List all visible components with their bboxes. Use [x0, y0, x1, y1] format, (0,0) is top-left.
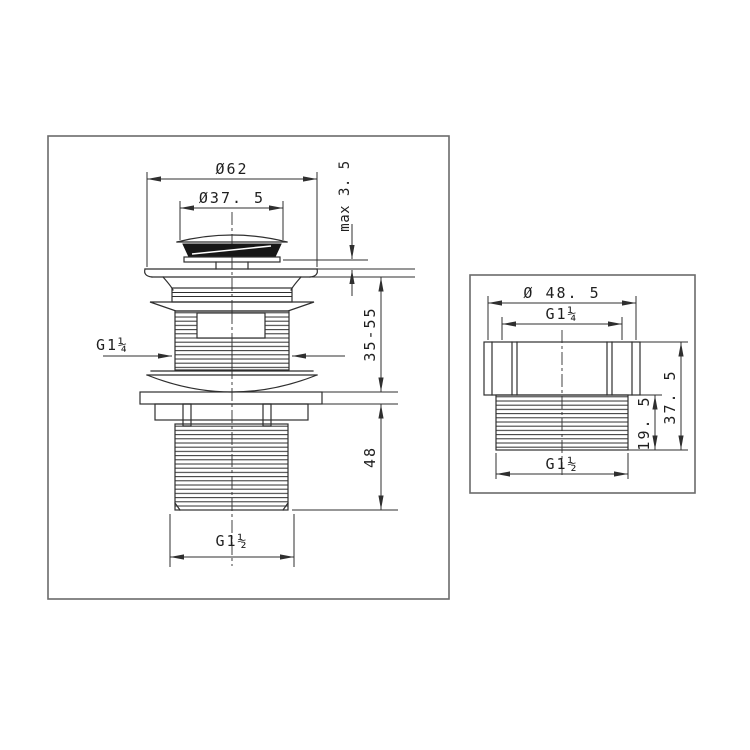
- locknut: [155, 404, 308, 420]
- dim-label-thread-length: 19. 5: [635, 395, 653, 450]
- lower-thread-tail: [175, 424, 288, 510]
- upper-thread-neck: [175, 311, 289, 370]
- dim-label-body-thread: G1¼: [96, 336, 129, 354]
- overflow-slot: [197, 313, 265, 338]
- locknut-tab: [183, 404, 191, 426]
- dim-label-flange-diameter: Ø62: [215, 160, 248, 178]
- dim-cap-diameter: Ø37. 5: [180, 189, 283, 240]
- dim-label-top-thread: G1¼: [545, 305, 578, 323]
- dim-label-total-height: 37. 5: [661, 369, 679, 424]
- dim-label-hex-diameter: Ø 48. 5: [523, 284, 600, 302]
- left-drawing: Ø62 Ø37. 5 max 3. 5 35-55: [96, 160, 415, 567]
- dim-label-tail-thread: G1½: [215, 532, 248, 550]
- dim-label-cap-clearance: max 3. 5: [337, 160, 353, 231]
- locknut-tab: [263, 404, 271, 426]
- right-drawing: Ø 48. 5 G1¼ 19. 5 37. 5 G1½: [484, 284, 688, 479]
- technical-drawing-canvas: Ø62 Ø37. 5 max 3. 5 35-55: [0, 0, 750, 750]
- dim-cap-clearance: max 3. 5: [283, 160, 415, 296]
- dim-clamping-range: 35-55: [322, 278, 398, 393]
- dim-thread-length: 19. 5: [635, 395, 662, 451]
- dim-bottom-thread: G1½: [496, 453, 628, 479]
- dim-label-cap-diameter: Ø37. 5: [199, 189, 265, 207]
- top-flange: [145, 269, 318, 311]
- seal-washer-and-locknut: [140, 371, 322, 426]
- dim-label-tail-thread-length: 48: [361, 446, 379, 468]
- dim-label-bottom-thread: G1½: [545, 455, 578, 473]
- mounting-plate: [140, 392, 322, 404]
- dim-label-clamping-range: 35-55: [361, 306, 379, 361]
